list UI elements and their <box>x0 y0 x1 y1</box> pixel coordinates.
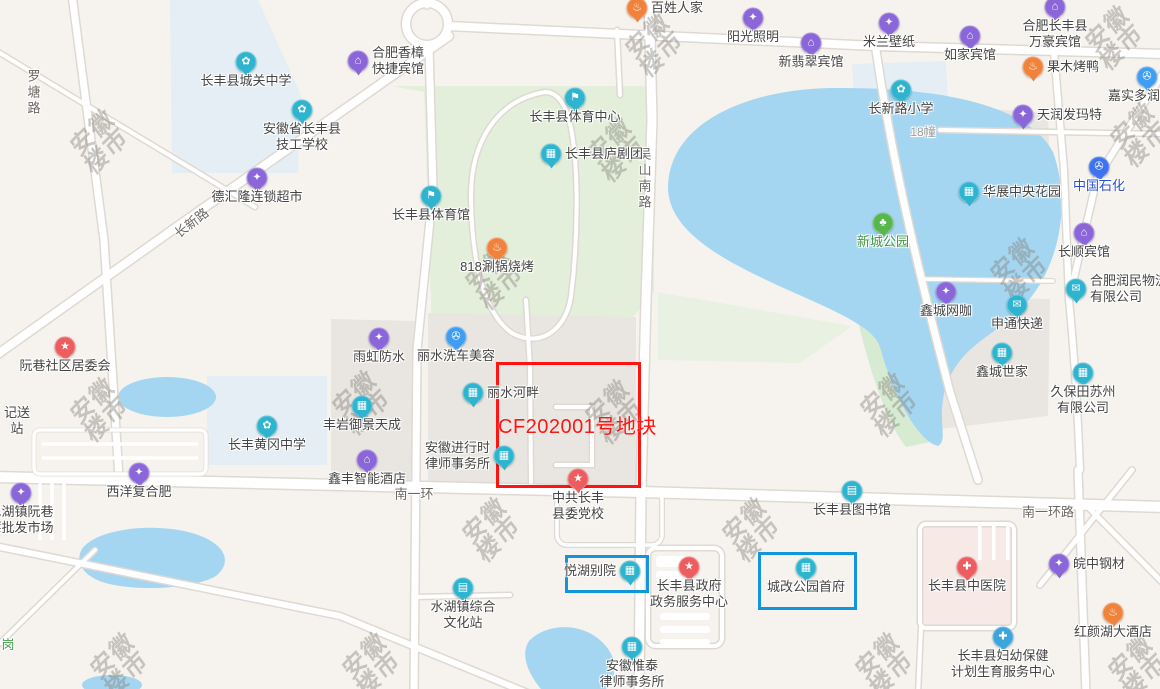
poi-label: 合肥润民物流有限公司 <box>1090 273 1160 305</box>
poi-label: 818涮锅烧烤 <box>460 259 534 275</box>
building-icon: ▦ <box>352 396 373 417</box>
car-icon: ✇ <box>446 327 467 348</box>
sports-icon: ⚑ <box>421 186 442 207</box>
poi-label: 岗 <box>1 637 14 653</box>
poi-label: 长顺宾馆 <box>1058 244 1110 260</box>
shop-icon: ✦ <box>1013 105 1034 126</box>
poi-label: 阮巷社区居委会 <box>19 358 110 374</box>
poi-label: 中国石化 <box>1073 178 1125 194</box>
food-icon: ♨ <box>487 238 508 259</box>
poi-label: 长丰县政府政务服务中心 <box>650 578 728 610</box>
road-label: 南一环路 <box>1022 502 1074 521</box>
hotel-icon: ⌂ <box>348 51 369 72</box>
poi-label: 红颜湖大酒店 <box>1074 624 1152 640</box>
poi-label: 久保田苏州有限公司 <box>1050 384 1115 416</box>
poi-label: 德汇隆连锁超市 <box>211 189 302 205</box>
poi-label: 长丰县妇幼保健计划生育服务中心 <box>951 648 1055 680</box>
culture-icon: ▤ <box>453 578 474 599</box>
poi-label: 长丰县体育馆 <box>392 207 470 223</box>
poi-label: 米兰壁纸 <box>863 34 915 50</box>
poi-label: 鑫城网咖 <box>920 303 972 319</box>
food-icon: ♨ <box>627 0 648 19</box>
poi-label: 新翡翠宾馆 <box>778 54 843 70</box>
poi-label: 长丰县庐剧团 <box>565 146 643 162</box>
health-icon: ✚ <box>993 627 1014 648</box>
poi-label: 水湖镇阮巷莓批发市场 <box>0 504 54 536</box>
poi-label: 新城公园 <box>857 234 909 250</box>
poi-label: 长丰县体育中心 <box>529 109 620 125</box>
food-icon: ♨ <box>1023 57 1044 78</box>
netcafe-icon: ✦ <box>936 282 957 303</box>
hotel-icon: ⌂ <box>357 450 378 471</box>
hotel-icon: ⌂ <box>960 26 981 47</box>
market-icon: ✦ <box>11 483 32 504</box>
government-icon: ★ <box>679 557 700 578</box>
party-icon: ★ <box>568 469 589 490</box>
poi-label: 长丰县中医院 <box>928 578 1006 594</box>
poi-label: 天润发玛特 <box>1037 107 1102 123</box>
school-icon: ✿ <box>891 80 912 101</box>
poi-label: 百姓人家 <box>651 0 703 16</box>
poi-label: 嘉实多润滑油 <box>1108 88 1160 104</box>
shop-icon: ✦ <box>879 13 900 34</box>
poi-label: 合肥香樟快捷宾馆 <box>372 45 424 77</box>
sports-icon: ⚑ <box>565 88 586 109</box>
food-icon: ♨ <box>1103 603 1124 624</box>
building-icon: ▦ <box>463 383 484 404</box>
poi-label: 阳光照明 <box>727 29 779 45</box>
poi-label: 长新路小学 <box>868 101 933 117</box>
logistics-icon: ✉ <box>1066 279 1087 300</box>
school-icon: ✿ <box>292 100 313 121</box>
poi-label: 城改公园首府 <box>767 579 845 595</box>
poi-label: 水湖镇综合文化站 <box>430 599 495 631</box>
shop-icon: ✦ <box>129 463 150 484</box>
poi-label: 丽水河畔 <box>487 385 539 401</box>
express-icon: ✉ <box>1007 295 1028 316</box>
school-icon: ✿ <box>236 52 257 73</box>
poi-label: 安徽省长丰县技工学校 <box>263 121 341 153</box>
poi-label: 合肥长丰县万豪宾馆 <box>1022 18 1087 50</box>
poi-label: 长丰县城关中学 <box>200 73 291 89</box>
shop-icon: ✦ <box>369 328 390 349</box>
gas-icon: ✇ <box>1089 157 1110 178</box>
poi-label: 西洋复合肥 <box>106 484 171 500</box>
shop-icon: ✦ <box>247 168 268 189</box>
shop-icon: ✦ <box>1049 554 1070 575</box>
poi-label: 安徽进行时律师事务所 <box>425 440 490 472</box>
shop-icon: ✦ <box>743 8 764 29</box>
hotel-icon: ⌂ <box>801 33 822 54</box>
poi-label: 鑫丰智能酒店 <box>328 471 406 487</box>
school-icon: ✿ <box>257 416 278 437</box>
hotel-icon: ⌂ <box>1074 223 1095 244</box>
poi-label: 如家宾馆 <box>944 47 996 63</box>
hotel-icon: ⌂ <box>1045 0 1066 18</box>
poi-label: 申通快递 <box>991 316 1043 332</box>
map-canvas[interactable]: CF202001号地块 安徽楼市安徽楼市安徽楼市安徽楼市安徽楼市安徽楼市安徽楼市… <box>0 0 1160 689</box>
building-icon: ▦ <box>620 561 641 582</box>
library-icon: ▤ <box>842 481 863 502</box>
poi-label: 雨虹防水 <box>353 349 405 365</box>
poi-label: 安徽惟泰律师事务所 <box>599 658 664 689</box>
theater-icon: ▦ <box>541 144 562 165</box>
law-icon: ▦ <box>494 446 515 467</box>
road-label: 罗塘路 <box>24 69 43 117</box>
poi-label: 长丰黄冈中学 <box>228 437 306 453</box>
building-icon: ▦ <box>959 182 980 203</box>
building-icon: ▦ <box>992 343 1013 364</box>
plot-label: CF202001号地块 <box>498 410 657 439</box>
car-icon: ✇ <box>1137 67 1158 88</box>
poi-label: 长丰县图书馆 <box>813 502 891 518</box>
poi-label: 丽水洗车美容 <box>417 348 495 364</box>
poi-label: 鑫城世家 <box>976 364 1028 380</box>
poi-label: 记送站 <box>4 405 30 437</box>
building-icon: ▦ <box>796 558 817 579</box>
poi-label: 华展中央花园 <box>983 184 1061 200</box>
hospital-icon: ✚ <box>957 557 978 578</box>
poi-label: 中共长丰县委党校 <box>552 490 604 522</box>
law-icon: ▦ <box>622 637 643 658</box>
poi-label: 悦湖别院 <box>564 563 616 579</box>
poi-label: 果木烤鸭 <box>1047 59 1099 75</box>
poi-label: 18幢 <box>910 124 935 140</box>
committee-icon: ★ <box>55 337 76 358</box>
park-icon: ♣ <box>873 213 894 234</box>
poi-label: 皖中钢材 <box>1073 556 1125 572</box>
poi-label: 丰岩御景天成 <box>323 417 401 433</box>
company-icon: ▦ <box>1073 363 1094 384</box>
